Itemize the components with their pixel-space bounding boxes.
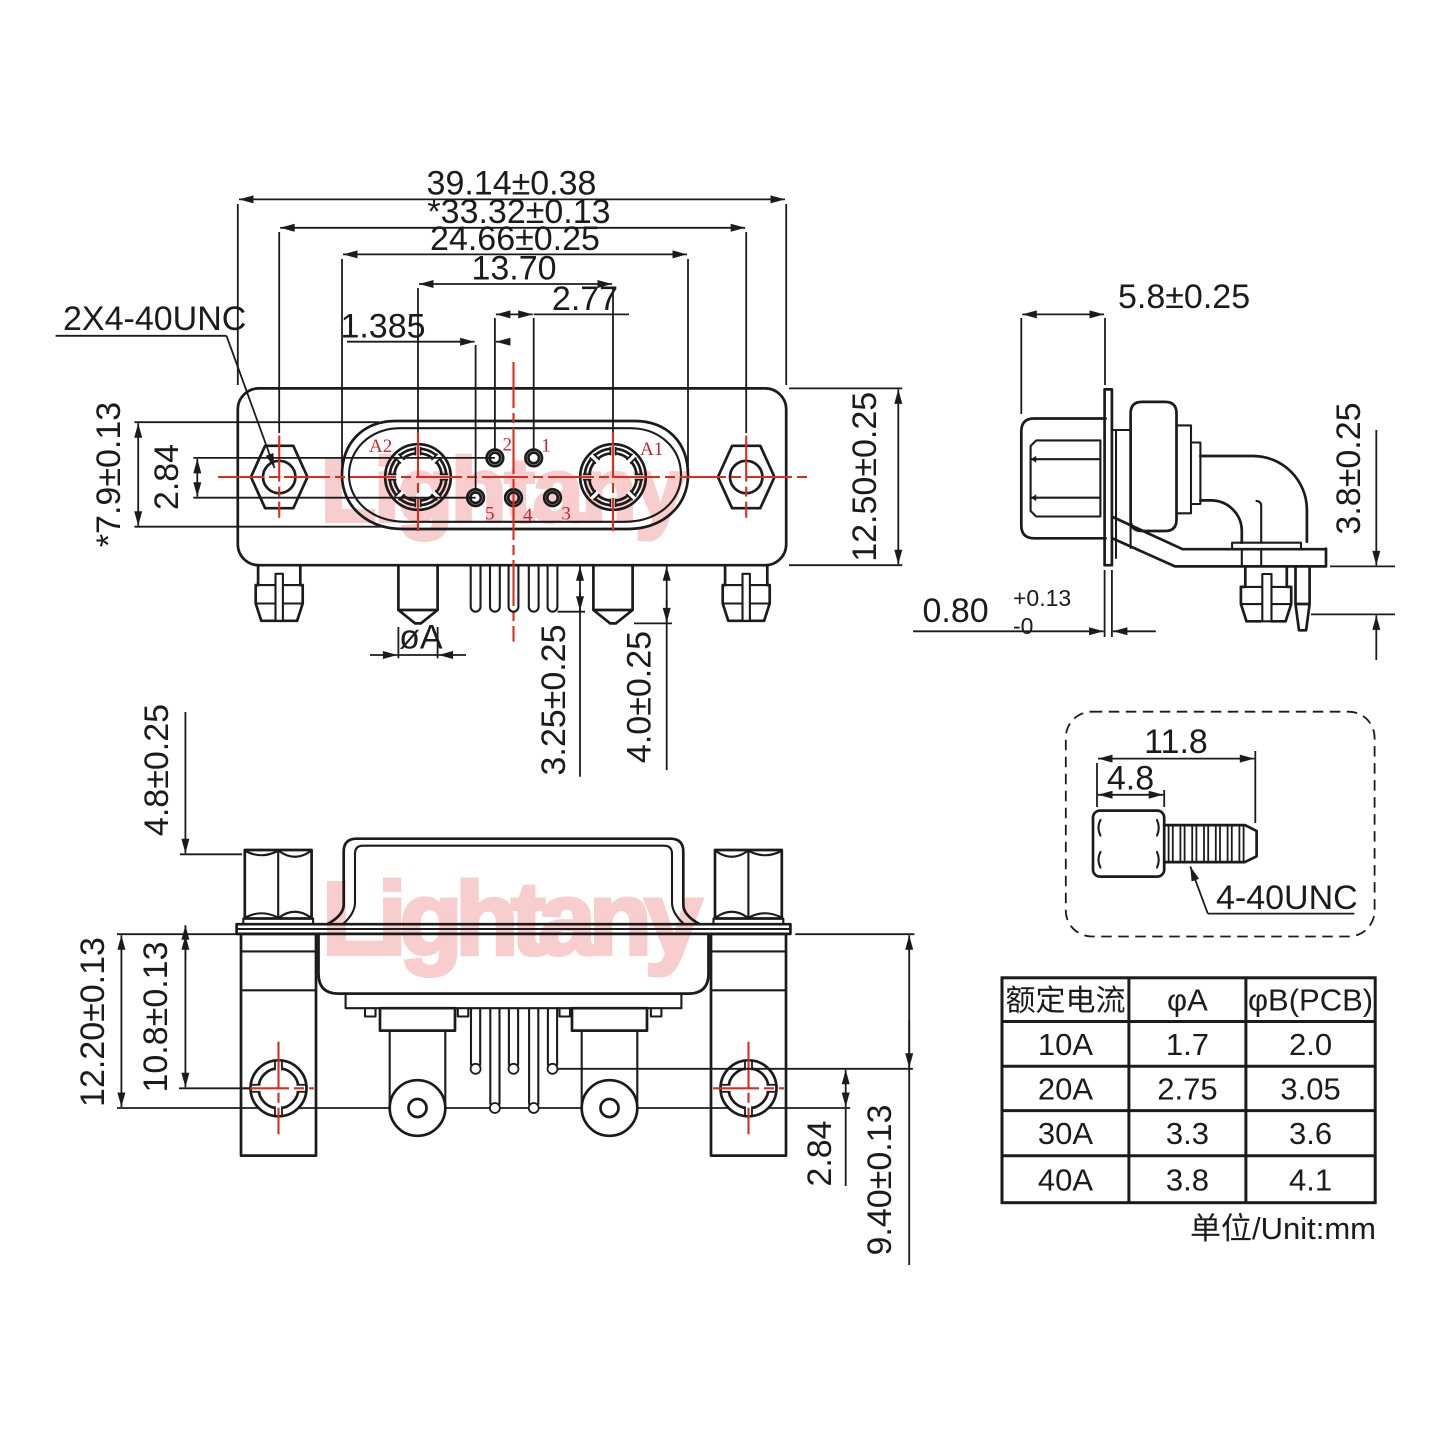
svg-text:+0.13: +0.13 xyxy=(1013,585,1071,611)
svg-text:13.70: 13.70 xyxy=(471,250,556,288)
svg-text:12.50±0.25: 12.50±0.25 xyxy=(846,392,884,562)
svg-text:3.05: 3.05 xyxy=(1280,1071,1340,1106)
svg-text:40A: 40A xyxy=(1038,1162,1093,1197)
svg-text:10A: 10A xyxy=(1038,1027,1093,1062)
svg-text:2.84: 2.84 xyxy=(148,444,186,510)
svg-text:3.3: 3.3 xyxy=(1166,1116,1209,1151)
svg-text:0.80: 0.80 xyxy=(923,592,989,630)
svg-text:A1: A1 xyxy=(640,439,663,460)
svg-text:4.8: 4.8 xyxy=(1107,760,1154,798)
svg-text:Lightany: Lightany xyxy=(322,861,702,976)
svg-text:1.7: 1.7 xyxy=(1166,1027,1209,1062)
svg-text:12.20±0.13: 12.20±0.13 xyxy=(74,937,112,1107)
svg-text:20A: 20A xyxy=(1038,1071,1093,1106)
svg-text:9.40±0.13: 9.40±0.13 xyxy=(861,1104,899,1255)
svg-text:2.84: 2.84 xyxy=(801,1120,839,1186)
svg-text:5.8±0.25: 5.8±0.25 xyxy=(1118,278,1250,316)
svg-text:/Unit:mm: /Unit:mm xyxy=(1252,1211,1376,1246)
svg-text:5: 5 xyxy=(485,504,495,525)
svg-text:3.6: 3.6 xyxy=(1289,1116,1332,1151)
svg-text:3.8±0.25: 3.8±0.25 xyxy=(1330,402,1368,534)
svg-text:4-40UNC: 4-40UNC xyxy=(1216,879,1358,917)
svg-text:10.8±0.13: 10.8±0.13 xyxy=(137,941,175,1092)
svg-text:A2: A2 xyxy=(369,436,392,457)
svg-text:2.75: 2.75 xyxy=(1157,1071,1217,1106)
svg-text:4.8±0.25: 4.8±0.25 xyxy=(138,704,176,836)
svg-text:4.1: 4.1 xyxy=(1289,1162,1332,1197)
svg-text:3: 3 xyxy=(561,504,571,525)
svg-text:2: 2 xyxy=(503,435,513,456)
svg-text:11.8: 11.8 xyxy=(1144,723,1208,761)
svg-text:2.0: 2.0 xyxy=(1289,1027,1332,1062)
svg-text:30A: 30A xyxy=(1038,1116,1093,1151)
svg-text:2X4-40UNC: 2X4-40UNC xyxy=(63,300,246,338)
svg-text:1: 1 xyxy=(541,436,551,457)
svg-text:3.25±0.25: 3.25±0.25 xyxy=(535,624,573,775)
svg-text:-0: -0 xyxy=(1013,613,1033,639)
svg-text:φA: φA xyxy=(1167,983,1208,1018)
svg-text:2.77: 2.77 xyxy=(552,280,618,318)
svg-text:*7.9±0.13: *7.9±0.13 xyxy=(90,402,128,547)
svg-text:4: 4 xyxy=(523,505,533,526)
svg-text:øA: øA xyxy=(399,619,443,657)
svg-text:4.0±0.25: 4.0±0.25 xyxy=(621,631,659,763)
svg-text:1.385: 1.385 xyxy=(340,308,425,346)
svg-text:3.8: 3.8 xyxy=(1166,1162,1209,1197)
svg-text:φB(PCB): φB(PCB) xyxy=(1248,983,1373,1018)
